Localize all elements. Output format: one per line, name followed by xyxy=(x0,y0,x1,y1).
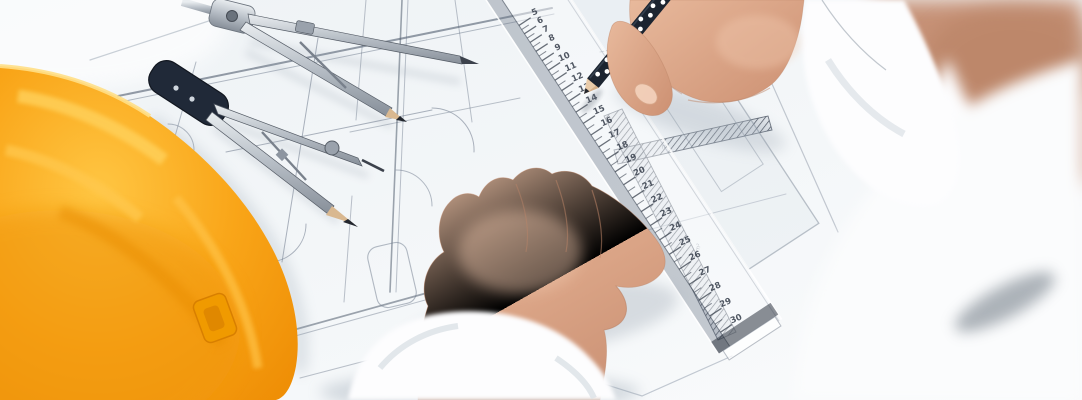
grip-screw xyxy=(173,85,178,90)
architect-blueprint-photo: m²m² xyxy=(0,0,1082,400)
compass-hinge-screw xyxy=(227,11,238,22)
adjuster-wheel xyxy=(325,141,339,155)
knuckle-highlight xyxy=(716,15,800,69)
photo-canvas: m²m² xyxy=(0,0,1082,400)
hand-highlight xyxy=(458,210,582,294)
grip-screw xyxy=(189,96,194,101)
